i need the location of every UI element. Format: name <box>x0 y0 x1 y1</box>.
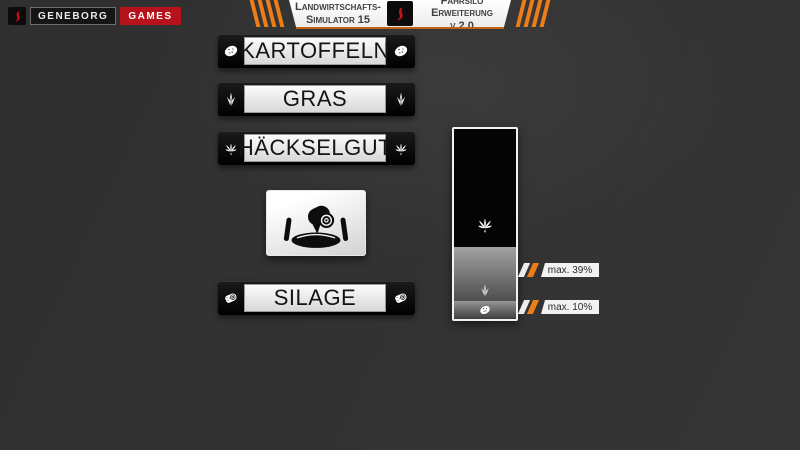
crop-row-haeckselgut: HÄCKSELGUT <box>218 131 415 165</box>
grass-icon <box>218 82 244 116</box>
brand-division-label: GAMES <box>120 7 180 25</box>
game-title: Landwirtschafts- Simulator 15 <box>294 1 382 26</box>
mod-title-line1: Fahrsilo <box>418 0 506 7</box>
grass-icon <box>386 82 415 116</box>
segment-gras <box>454 247 516 300</box>
callout-label-10: max. 10% <box>541 300 599 314</box>
game-title-line1: Landwirtschafts- <box>294 1 382 14</box>
silage-bale-icon <box>386 281 415 315</box>
segment-kartoffeln <box>454 301 516 319</box>
header-banner: Landwirtschafts- Simulator 15 Fahrsilo E… <box>250 0 550 32</box>
crop-row-gras: GRAS <box>218 82 415 116</box>
callout-max-10: max. 10% <box>521 300 599 314</box>
geneborg-flame-icon <box>8 7 26 25</box>
potato-icon <box>386 34 415 68</box>
crop-label-silage: SILAGE <box>244 284 386 312</box>
title-banner: Landwirtschafts- Simulator 15 Fahrsilo E… <box>289 0 511 27</box>
brand-studio-label: GENEBORG <box>30 7 116 25</box>
banner-underline <box>296 27 504 29</box>
game-title-line2: Simulator 15 <box>294 14 382 27</box>
silage-bale-icon <box>218 281 244 315</box>
silo-capacity-bar <box>452 127 518 321</box>
bunker-silo-emblem <box>266 190 366 256</box>
banner-stripes-left <box>253 0 281 27</box>
banner-stripes-right <box>519 0 547 27</box>
callout-label-39: max. 39% <box>541 263 599 277</box>
potato-icon <box>478 303 492 317</box>
studio-logo-icon <box>387 1 413 26</box>
crop-label-kartoffeln: KARTOFFELN <box>244 37 386 65</box>
chaff-icon <box>474 213 496 235</box>
chaff-icon <box>386 131 415 165</box>
bunker-silo-roller-icon <box>270 194 362 252</box>
crop-row-kartoffeln: KARTOFFELN <box>218 34 415 68</box>
crop-label-haeckselgut: HÄCKSELGUT <box>244 134 386 162</box>
screen: GENEBORG GAMES Landwirtschafts- Simulato… <box>0 0 800 450</box>
segment-haeckselgut <box>454 129 516 247</box>
crop-row-silage: SILAGE <box>218 281 415 315</box>
grass-icon <box>477 282 493 298</box>
callout-max-39: max. 39% <box>521 263 599 277</box>
crop-label-gras: GRAS <box>244 85 386 113</box>
branding: GENEBORG GAMES <box>8 7 181 25</box>
